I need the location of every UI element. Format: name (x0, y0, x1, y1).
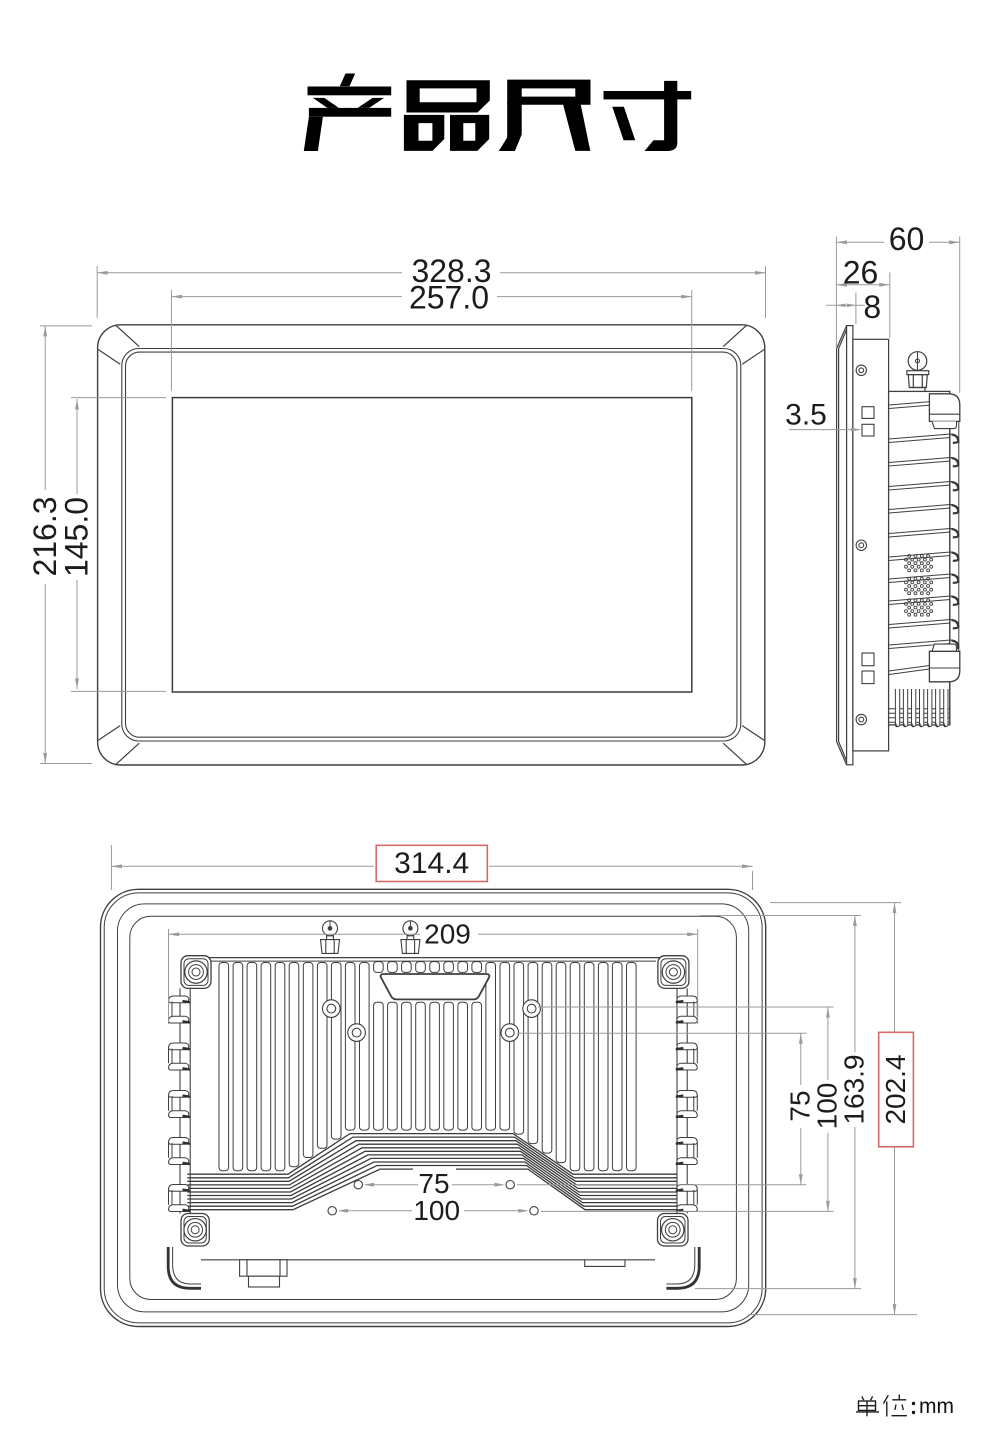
svg-text:202.4: 202.4 (880, 1054, 911, 1124)
svg-text:100: 100 (413, 1195, 460, 1226)
svg-text:314.4: 314.4 (394, 847, 469, 880)
svg-text:8: 8 (863, 289, 881, 325)
svg-text:257.0: 257.0 (409, 279, 489, 315)
svg-text:26: 26 (843, 255, 879, 291)
svg-text:209: 209 (424, 919, 471, 950)
svg-text:3.5: 3.5 (785, 399, 827, 432)
svg-text:145.0: 145.0 (59, 497, 95, 577)
svg-text:60: 60 (889, 221, 925, 257)
svg-text:163.9: 163.9 (839, 1054, 870, 1124)
svg-text:mm: mm (919, 1395, 954, 1418)
